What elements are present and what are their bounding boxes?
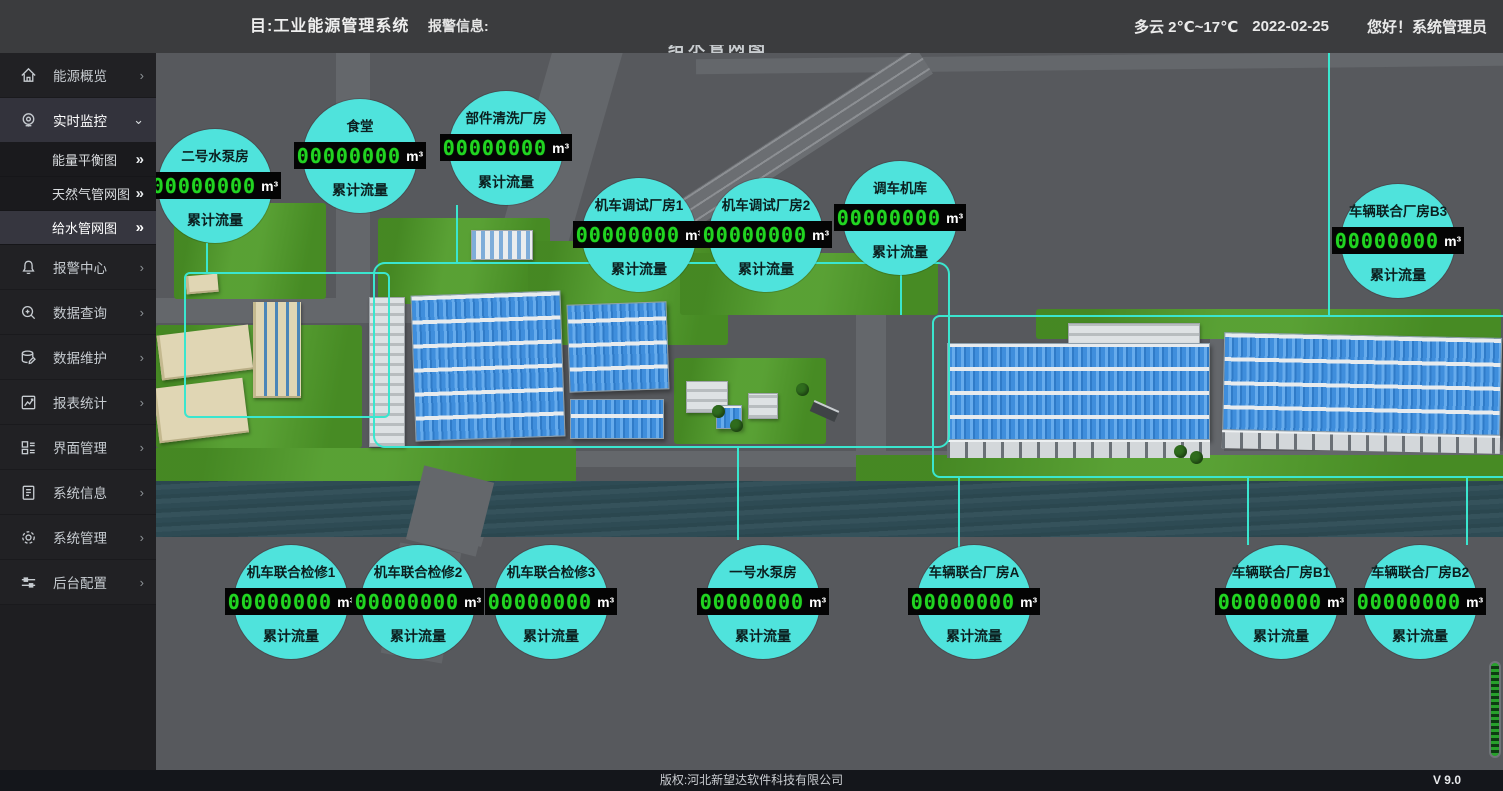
badge-flow-label: 累计流量 (830, 242, 970, 262)
pipeline-stub (958, 478, 960, 548)
sidebar-item-energy-overview[interactable]: 能源概览 › (0, 53, 156, 98)
submenu-label: 能量平衡图 (52, 150, 117, 169)
badge-value: 00000000 (576, 225, 680, 245)
sidebar-item-system-management[interactable]: 系统管理 › (0, 515, 156, 560)
road-top-right (696, 53, 1503, 74)
date-text: 2022-02-25 (1252, 18, 1329, 35)
footer-bar: 版权:河北新望达软件科技有限公司 V 9.0 (0, 770, 1503, 791)
badge-flow-label: 累计流量 (904, 626, 1044, 646)
badge-lcd-display: 00000000 m³ (908, 588, 1040, 615)
badge-title: 调车机库 (824, 177, 976, 197)
badge-value: 00000000 (443, 138, 547, 158)
sidebar-subitem-water-network[interactable]: 给水管网图 » (0, 211, 156, 245)
badge-title: 机车调试厂房2 (690, 194, 842, 214)
sidebar-item-interface-management[interactable]: 界面管理 › (0, 425, 156, 470)
bell-icon (18, 257, 38, 277)
badge-lcd-display: 00000000 m³ (352, 588, 484, 615)
badge-value: 00000000 (837, 208, 941, 228)
badge-value: 00000000 (703, 225, 807, 245)
sidebar-item-system-info[interactable]: 系统信息 › (0, 470, 156, 515)
sidebar-item-alarm-center[interactable]: 报警中心 › (0, 245, 156, 290)
badge-unit: m³ (597, 595, 614, 609)
flow-meter-badge-pump2[interactable]: 二号水泵房 00000000 m³ 累计流量 (156, 129, 285, 245)
sidebar-item-backend-config[interactable]: 后台配置 › (0, 560, 156, 605)
version-text: V 9.0 (1433, 770, 1461, 791)
grass-bank-left (156, 448, 576, 481)
chevron-right-icon: › (140, 68, 144, 83)
badge-value: 00000000 (228, 592, 332, 612)
double-chevron-icon: » (136, 151, 142, 168)
sidebar-subitem-gas-network[interactable]: 天然气管网图 » (0, 177, 156, 211)
chevron-right-icon: › (140, 395, 144, 410)
badge-lcd-display: 00000000 m³ (573, 221, 705, 248)
flow-meter-badge-loco-test-2[interactable]: 机车调试厂房2 00000000 m³ 累计流量 (696, 178, 836, 294)
badge-lcd-display: 00000000 m³ (700, 221, 832, 248)
badge-lcd-display: 00000000 m³ (1354, 588, 1486, 615)
badge-unit: m³ (809, 595, 826, 609)
badge-lcd-display: 00000000 m³ (1332, 227, 1464, 254)
badge-unit: m³ (552, 141, 569, 155)
database-icon (18, 347, 38, 367)
alarm-info-label: 报警信息: (428, 0, 489, 53)
document-icon (18, 482, 38, 502)
badge-value: 00000000 (1357, 592, 1461, 612)
badge-title: 车辆联合厂房A (898, 561, 1050, 581)
monitor-icon (18, 110, 38, 130)
home-icon (18, 65, 38, 85)
chevron-right-icon: › (140, 305, 144, 320)
sidebar-item-label: 系统管理 (53, 527, 107, 547)
badge-value: 00000000 (700, 592, 804, 612)
sidebar-item-label: 实时监控 (53, 110, 107, 130)
chevron-down-icon: ⌄ (133, 112, 144, 128)
chevron-right-icon: › (140, 350, 144, 365)
badge-value: 00000000 (355, 592, 459, 612)
badge-flow-label: 累计流量 (221, 626, 361, 646)
pipeline-stub (900, 275, 902, 315)
sidebar-item-label: 报表统计 (53, 392, 107, 412)
sidebar-item-label: 数据查询 (53, 302, 107, 322)
badge-title: 车辆联合厂房B1 (1205, 561, 1357, 581)
flow-meter-badge-canteen[interactable]: 食堂 00000000 m³ 累计流量 (290, 99, 430, 215)
submenu-label: 给水管网图 (52, 218, 117, 237)
flow-meter-badge-shunting-depot[interactable]: 调车机库 00000000 m³ 累计流量 (830, 161, 970, 277)
sidebar-item-data-query[interactable]: 数据查询 › (0, 290, 156, 335)
badge-flow-label: 累计流量 (696, 259, 836, 279)
badge-unit: m³ (1327, 595, 1344, 609)
badge-flow-label: 累计流量 (1350, 626, 1490, 646)
sidebar-item-label: 界面管理 (53, 437, 107, 457)
badge-flow-label: 累计流量 (348, 626, 488, 646)
copyright-text: 版权:河北新望达软件科技有限公司 (0, 770, 1503, 791)
double-chevron-icon: » (136, 219, 142, 236)
badge-unit: m³ (464, 595, 481, 609)
sidebar: 能源概览 › 实时监控 ⌄ 能量平衡图 » 天然气管网图 » 给水管网图 » 报… (0, 53, 156, 770)
chevron-right-icon: › (140, 485, 144, 500)
flow-meter-badge-loco-repair-2[interactable]: 机车联合检修2 00000000 m³ 累计流量 (348, 545, 488, 661)
flow-meter-badge-vehicle-plant-A[interactable]: 车辆联合厂房A 00000000 m³ 累计流量 (904, 545, 1044, 661)
flow-meter-badge-parts-cleaning[interactable]: 部件清洗厂房 00000000 m³ 累计流量 (436, 91, 576, 207)
chevron-right-icon: › (140, 440, 144, 455)
badge-unit: m³ (261, 179, 278, 193)
badge-value: 00000000 (1218, 592, 1322, 612)
badge-flow-label: 累计流量 (290, 180, 430, 200)
sidebar-subitem-energy-balance[interactable]: 能量平衡图 » (0, 143, 156, 177)
badge-value: 00000000 (911, 592, 1015, 612)
flow-meter-badge-loco-test-1[interactable]: 机车调试厂房1 00000000 m³ 累计流量 (569, 178, 709, 294)
badge-title: 车辆联合厂房B2 (1344, 561, 1496, 581)
badge-flow-label: 累计流量 (1211, 626, 1351, 646)
page-title: 目:工业能源管理系统 (250, 0, 409, 53)
chevron-right-icon: › (140, 260, 144, 275)
badge-title: 机车联合检修2 (342, 561, 494, 581)
badge-lcd-display: 00000000 m³ (440, 134, 572, 161)
sidebar-item-label: 系统信息 (53, 482, 107, 502)
submenu-label: 天然气管网图 (52, 184, 130, 203)
map-canvas: 二号水泵房 00000000 m³ 累计流量 食堂 00000000 m³ 累计… (156, 53, 1503, 770)
flow-meter-badge-vehicle-plant-B3[interactable]: 车辆联合厂房B3 00000000 m³ 累计流量 (1328, 184, 1468, 300)
badge-lcd-display: 00000000 m³ (834, 204, 966, 231)
sidebar-item-label: 报警中心 (53, 257, 107, 277)
badge-unit: m³ (1444, 234, 1461, 248)
badge-flow-label: 累计流量 (156, 210, 285, 230)
badge-flow-label: 累计流量 (1328, 265, 1468, 285)
grid-icon (18, 437, 38, 457)
badge-unit: m³ (406, 149, 423, 163)
badge-value: 00000000 (488, 592, 592, 612)
building-white-top (471, 230, 533, 260)
badge-flow-label: 累计流量 (481, 626, 621, 646)
badge-flow-label: 累计流量 (693, 626, 833, 646)
vertical-scrollbar-thumb[interactable] (1489, 661, 1501, 758)
chevron-right-icon: › (140, 575, 144, 590)
flow-meter-badge-vehicle-plant-B2[interactable]: 车辆联合厂房B2 00000000 m³ 累计流量 (1350, 545, 1490, 661)
badge-title: 部件清洗厂房 (430, 107, 582, 127)
double-chevron-icon: » (136, 185, 142, 202)
badge-lcd-display: 00000000 m³ (225, 588, 357, 615)
badge-unit: m³ (1020, 595, 1037, 609)
badge-unit: m³ (946, 211, 963, 225)
header-right: 多云 2℃~17℃ 2022-02-25 您好！系统管理员 (1134, 0, 1487, 53)
sidebar-item-label: 能源概览 (53, 65, 107, 85)
app-window: 目:工业能源管理系统 报警信息: 多云 2℃~17℃ 2022-02-25 您好… (0, 0, 1503, 791)
flow-meter-badge-pump1[interactable]: 一号水泵房 00000000 m³ 累计流量 (693, 545, 833, 661)
sidebar-item-realtime-monitor[interactable]: 实时监控 ⌄ (0, 98, 156, 143)
pipeline-stub (456, 205, 458, 262)
pipeline-stub (1247, 478, 1249, 545)
chevron-right-icon: › (140, 530, 144, 545)
badge-title: 二号水泵房 (156, 145, 291, 165)
sidebar-item-data-maintenance[interactable]: 数据维护 › (0, 335, 156, 380)
badge-title: 食堂 (284, 115, 436, 135)
pipeline-stub (206, 243, 208, 272)
sidebar-item-label: 后台配置 (53, 572, 107, 592)
flow-meter-badge-loco-repair-3[interactable]: 机车联合检修3 00000000 m³ 累计流量 (481, 545, 621, 661)
badge-lcd-display: 00000000 m³ (697, 588, 829, 615)
badge-lcd-display: 00000000 m³ (1215, 588, 1347, 615)
clipped-map-title: 给水管网图 (668, 45, 798, 53)
sidebar-item-label: 数据维护 (53, 347, 107, 367)
pipeline-stub (1466, 478, 1468, 545)
badge-value: 00000000 (1335, 231, 1439, 251)
badge-value: 00000000 (156, 176, 256, 196)
badge-lcd-display: 00000000 m³ (156, 172, 281, 199)
badge-title: 一号水泵房 (687, 561, 839, 581)
badge-unit: m³ (812, 228, 829, 242)
river (156, 481, 1503, 537)
badge-flow-label: 累计流量 (436, 172, 576, 192)
weather-text: 多云 2℃~17℃ (1134, 16, 1238, 37)
top-header: 目:工业能源管理系统 报警信息: 多云 2℃~17℃ 2022-02-25 您好… (0, 0, 1503, 53)
badge-title: 车辆联合厂房B3 (1322, 200, 1474, 220)
flow-meter-badge-loco-repair-1[interactable]: 机车联合检修1 00000000 m³ 累计流量 (221, 545, 361, 661)
sidebar-item-report-statistics[interactable]: 报表统计 › (0, 380, 156, 425)
badge-lcd-display: 00000000 m³ (485, 588, 617, 615)
search-icon (18, 302, 38, 322)
badge-title: 机车联合检修3 (475, 561, 627, 581)
pipeline-loop-left (184, 272, 390, 418)
pipeline-loop-right (932, 315, 1503, 478)
badge-lcd-display: 00000000 m³ (294, 142, 426, 169)
flow-meter-badge-vehicle-plant-B1[interactable]: 车辆联合厂房B1 00000000 m³ 累计流量 (1211, 545, 1351, 661)
badge-flow-label: 累计流量 (569, 259, 709, 279)
sliders-icon (18, 572, 38, 592)
user-greeting: 您好！系统管理员 (1367, 16, 1487, 37)
badge-unit: m³ (1466, 595, 1483, 609)
chart-icon (18, 392, 38, 412)
badge-value: 00000000 (297, 146, 401, 166)
pipeline-stub (737, 448, 739, 540)
gear-icon (18, 527, 38, 547)
